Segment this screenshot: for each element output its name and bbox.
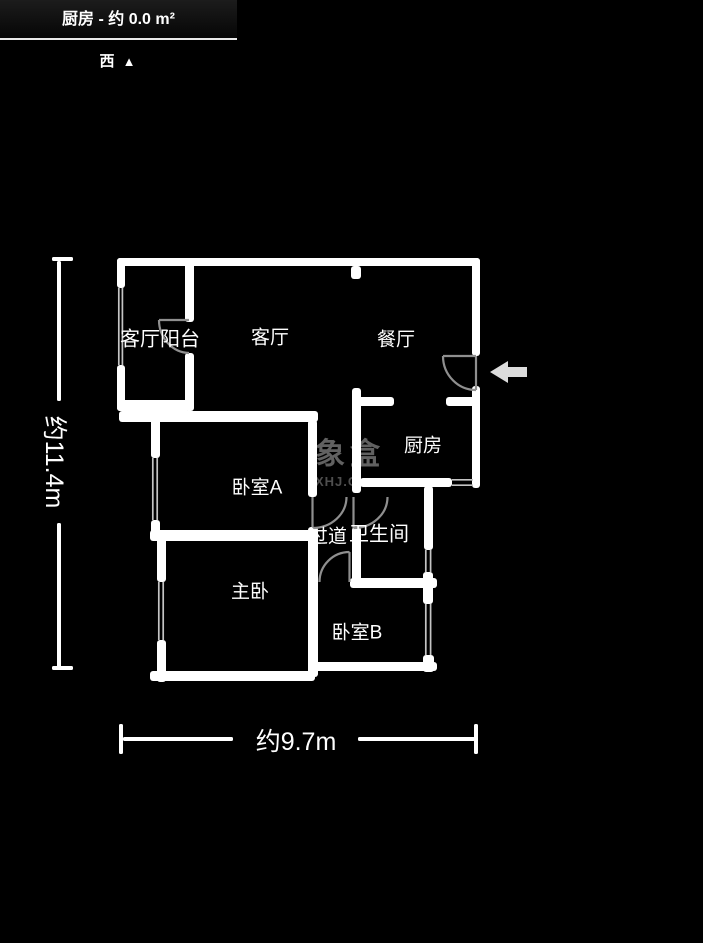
room-label-dining-room: 餐厅 bbox=[377, 325, 415, 352]
room-label-bedroom-a: 卧室A bbox=[232, 473, 283, 500]
wall-balcony-left-upper bbox=[117, 258, 125, 288]
door-master-bedroom bbox=[320, 552, 350, 582]
dimension-height-label: 约11.4m bbox=[38, 416, 74, 509]
floorplan-drawing bbox=[0, 0, 703, 943]
wall-master-top bbox=[150, 530, 318, 541]
wall-bathroom-right bbox=[424, 486, 433, 550]
wall-right-upper bbox=[472, 258, 480, 356]
room-label-living-balcony: 客厅阳台 bbox=[120, 323, 200, 352]
room-label-bedroom-b: 卧室B bbox=[332, 618, 383, 645]
wall-bedroom-a-right bbox=[308, 420, 317, 497]
dim-tick-left bbox=[119, 724, 123, 754]
entrance-arrow-icon bbox=[490, 361, 527, 383]
room-label-master-bedroom: 主卧 bbox=[231, 577, 269, 604]
wall-bedroom-b-top bbox=[350, 578, 437, 588]
room-label-living-room: 客厅 bbox=[251, 323, 289, 350]
wall-balcony-bottom bbox=[117, 400, 190, 411]
wall-kitchen-top-left bbox=[352, 397, 394, 406]
floorplan-canvas: 厨房 - 约 0.0 m² 西 ▲ 象盒 XHJ.C bbox=[0, 0, 703, 943]
wall-top bbox=[117, 258, 480, 266]
dim-tick-right bbox=[474, 724, 478, 754]
wall-dining-stub bbox=[351, 266, 361, 279]
dimension-width-label: 约9.7m bbox=[256, 722, 337, 758]
room-label-kitchen: 厨房 bbox=[404, 431, 442, 458]
wall-master-bottom bbox=[150, 671, 315, 681]
wall-master-left-upper bbox=[157, 537, 166, 582]
wall-master-left-lower bbox=[157, 640, 166, 682]
wall-balcony-divider-upper bbox=[185, 262, 194, 322]
wall-bedroom-b-bottom bbox=[309, 662, 437, 671]
wall-bedroom-a-top bbox=[119, 411, 318, 422]
dim-tick-top bbox=[52, 257, 73, 261]
wall-balcony-divider-lower bbox=[185, 353, 194, 411]
wall-balcony-left-lower bbox=[117, 365, 125, 411]
wall-kitchen-bottom bbox=[360, 478, 452, 487]
door-entrance bbox=[443, 356, 476, 390]
room-label-hallway: 过道 bbox=[309, 522, 347, 549]
dim-tick-bottom bbox=[52, 666, 73, 670]
wall-master-right bbox=[308, 527, 318, 677]
room-label-bathroom: 卫生间 bbox=[349, 518, 409, 547]
wall-kitchen-top-right bbox=[446, 397, 480, 406]
